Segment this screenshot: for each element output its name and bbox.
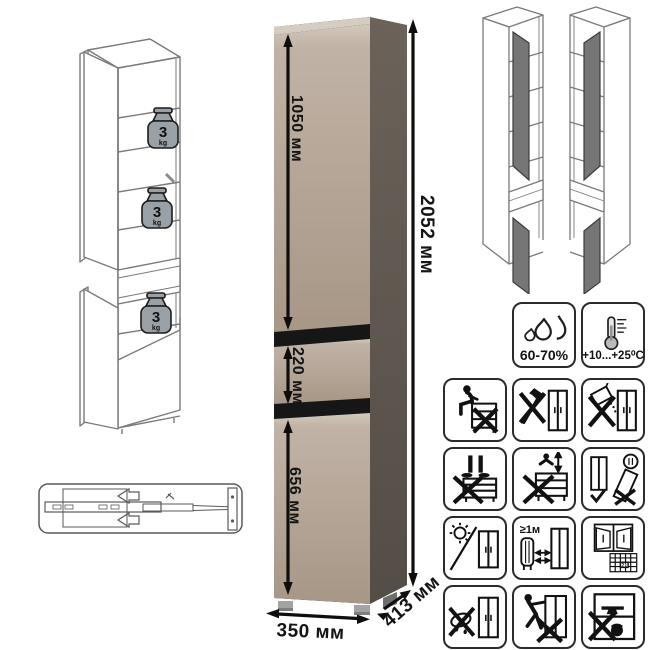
drawer-slide-diagram <box>25 468 253 552</box>
svg-text:3: 3 <box>152 309 160 326</box>
humidity-tolerance-card: 60-70% <box>512 302 576 368</box>
no-abrasives-cell <box>581 378 645 442</box>
svg-text:kg: kg <box>152 325 160 332</box>
no-jumping-icon <box>517 452 572 507</box>
warning-grid: ≥1м <box>443 378 645 649</box>
no-dragging-cell <box>512 585 576 649</box>
shelf-load-weight-1: 3 kg <box>148 108 178 148</box>
no-overload-cell <box>581 585 645 649</box>
avoid-sunlight-icon <box>448 521 503 576</box>
product-sheet: 3 kg 3 kg 3 kg <box>0 0 650 650</box>
humidity-value: 60-70% <box>520 348 568 362</box>
no-sitting-cell <box>443 378 507 442</box>
assembly-option-right <box>570 7 630 294</box>
temperature-tolerance-card: +10...+25⁰C <box>581 302 645 368</box>
no-jumping-cell <box>512 447 576 511</box>
no-standing-cell <box>443 447 507 511</box>
dim-total-height: 2052 мм <box>415 195 437 274</box>
no-overload-icon <box>586 590 641 645</box>
no-dragging-icon <box>517 590 572 645</box>
ventilate-room-icon: 21 <box>586 521 641 576</box>
open-cabinet-wireframe: 3 kg 3 kg 3 kg <box>50 30 205 440</box>
no-wet-cleaning-cell <box>443 585 507 649</box>
dim-lower-door-height: 656 мм <box>285 467 303 525</box>
temperature-icon <box>593 315 633 351</box>
dim-drawer-height: 220 мм <box>288 347 306 405</box>
no-abrasives-icon <box>586 383 641 438</box>
shelf-load-weight-2: 3 kg <box>142 188 172 228</box>
dim-upper-door-height: 1050 мм <box>287 95 305 162</box>
heater-distance-cell: ≥1м <box>512 516 576 580</box>
svg-text:kg: kg <box>159 140 167 147</box>
svg-text:21: 21 <box>621 562 627 568</box>
ventilate-room-cell: 21 <box>581 516 645 580</box>
no-sitting-icon <box>448 383 503 438</box>
temperature-value: +10...+25⁰C <box>582 351 644 363</box>
no-standing-icon <box>448 452 503 507</box>
heater-distance-icon: ≥1м <box>517 521 572 576</box>
no-sharp-tools-icon <box>517 383 572 438</box>
mirrored-assembly-options <box>463 2 650 294</box>
svg-text:kg: kg <box>153 220 161 227</box>
svg-text:≥1м: ≥1м <box>519 524 540 536</box>
cabinet-side-panel <box>370 17 407 604</box>
avoid-sunlight-cell <box>443 516 507 580</box>
cabinet-render <box>250 0 440 650</box>
humidity-icon <box>521 314 567 348</box>
transport-upright-icon <box>586 452 641 507</box>
dim-width: 350 мм <box>276 620 345 645</box>
no-sharp-tools-cell <box>512 378 576 442</box>
svg-text:3: 3 <box>153 204 161 221</box>
no-wet-cleaning-icon <box>448 590 503 645</box>
assembly-option-left <box>483 7 543 294</box>
svg-text:3: 3 <box>159 124 167 141</box>
transport-upright-cell <box>581 447 645 511</box>
